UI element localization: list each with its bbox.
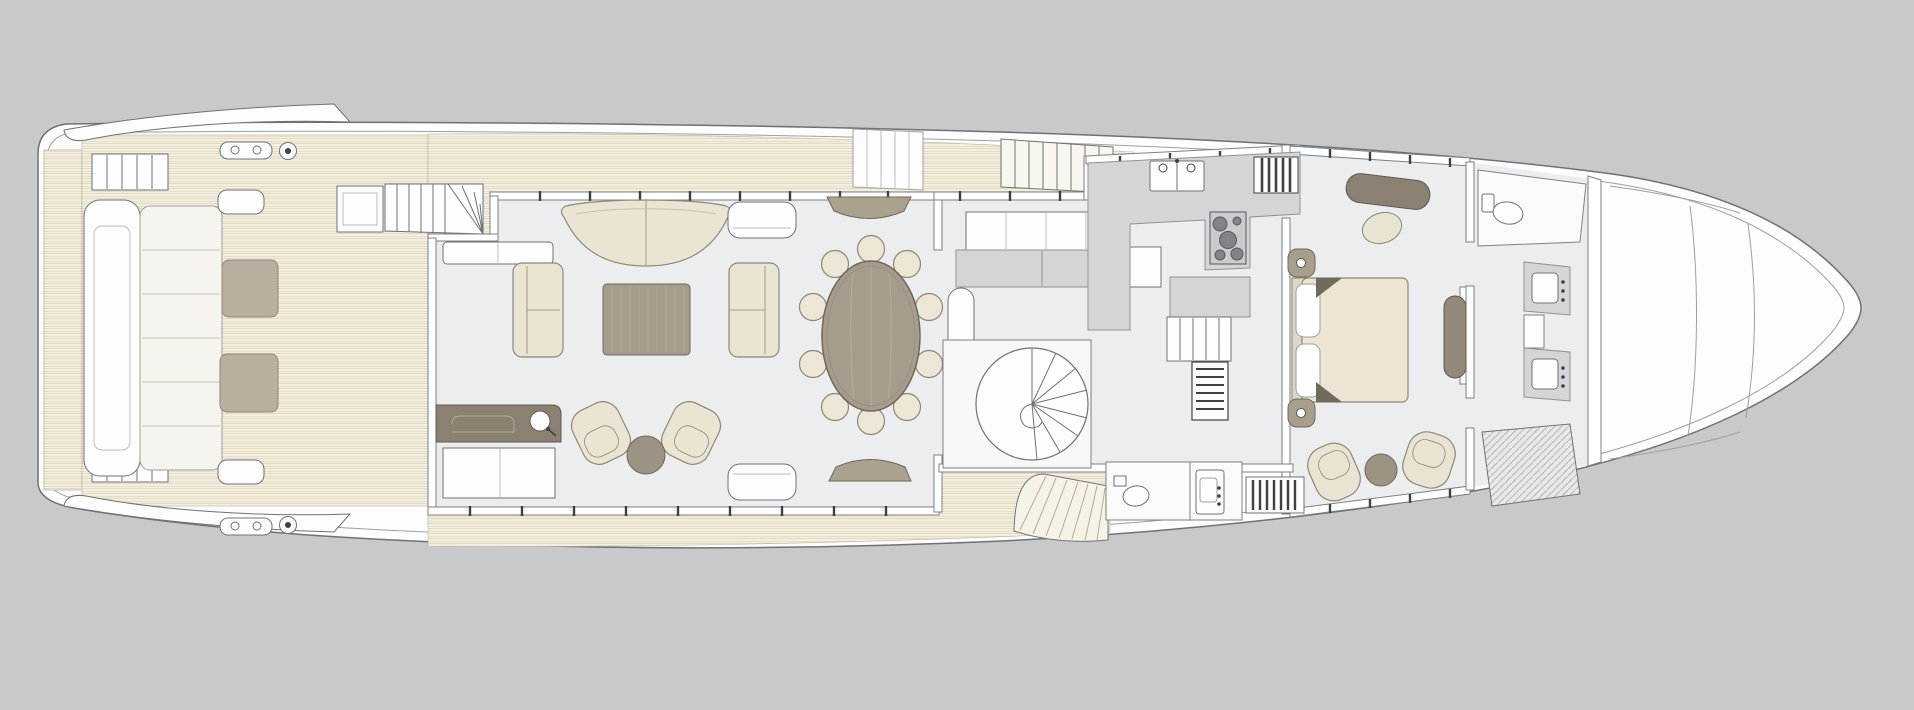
wall-salon-corner xyxy=(428,234,498,241)
vanity-basin-1 xyxy=(1532,273,1558,303)
day-head-vanity-fittings xyxy=(1217,486,1221,506)
pantry-side-cabinet xyxy=(1127,247,1161,287)
yacht-main-deck-floor-plan xyxy=(0,0,1914,710)
stern-steps-top xyxy=(92,154,168,190)
wall-salon-bottom xyxy=(428,507,939,515)
vanity-divider-wall xyxy=(1524,315,1544,348)
galley-island xyxy=(1170,277,1250,317)
master-tv-cabinet xyxy=(1444,296,1466,378)
wc-cistern xyxy=(1482,194,1494,212)
aft-sofa-side-table-bottom xyxy=(218,460,264,484)
shower xyxy=(1482,424,1580,506)
nightstand-bottom-lamp xyxy=(1297,409,1306,418)
aft-sofa-cushion-bottom xyxy=(220,354,278,412)
deck-vent-bars xyxy=(1253,480,1295,510)
aft-sofa-side-table-top xyxy=(218,190,264,214)
wall-bow-bulkhead xyxy=(1588,176,1601,466)
wine-cooler xyxy=(1192,362,1228,420)
wall-bath-middle xyxy=(1466,286,1474,398)
nightstand-top-lamp xyxy=(1297,259,1306,268)
window-bench-top xyxy=(728,202,796,238)
cleat-plate-bottom xyxy=(220,518,272,535)
vanity-basin-2 xyxy=(1532,359,1558,389)
wall-salon-aft xyxy=(428,238,436,514)
salon-side-table xyxy=(627,436,665,474)
boarding-gate-top xyxy=(853,129,923,190)
master-side-table xyxy=(1365,454,1397,486)
galley-tap xyxy=(1175,159,1179,163)
floor-plan-stage xyxy=(0,0,1914,710)
coffee-table xyxy=(603,284,690,355)
transom-teak-deck xyxy=(44,150,82,490)
wall-dining-stub-top xyxy=(934,196,942,250)
bar-sink-tap xyxy=(546,427,550,431)
day-head-cistern xyxy=(1114,476,1126,486)
galley-stairs-down xyxy=(1167,317,1231,361)
bollard-bottom-pin xyxy=(285,522,291,528)
wall-bath-lower xyxy=(1466,428,1474,490)
wall-pantry-top xyxy=(934,192,1090,200)
wall-bath-upper xyxy=(1466,162,1474,242)
aft-sofa-cushion-top xyxy=(222,260,278,317)
flybridge-stairs xyxy=(385,184,483,234)
cleat-plate-top xyxy=(220,142,272,159)
window-bench-bottom xyxy=(728,464,796,500)
aft-sofa-back xyxy=(84,200,140,476)
bollard-top-pin xyxy=(285,148,291,154)
bar-cabinet xyxy=(443,448,555,498)
